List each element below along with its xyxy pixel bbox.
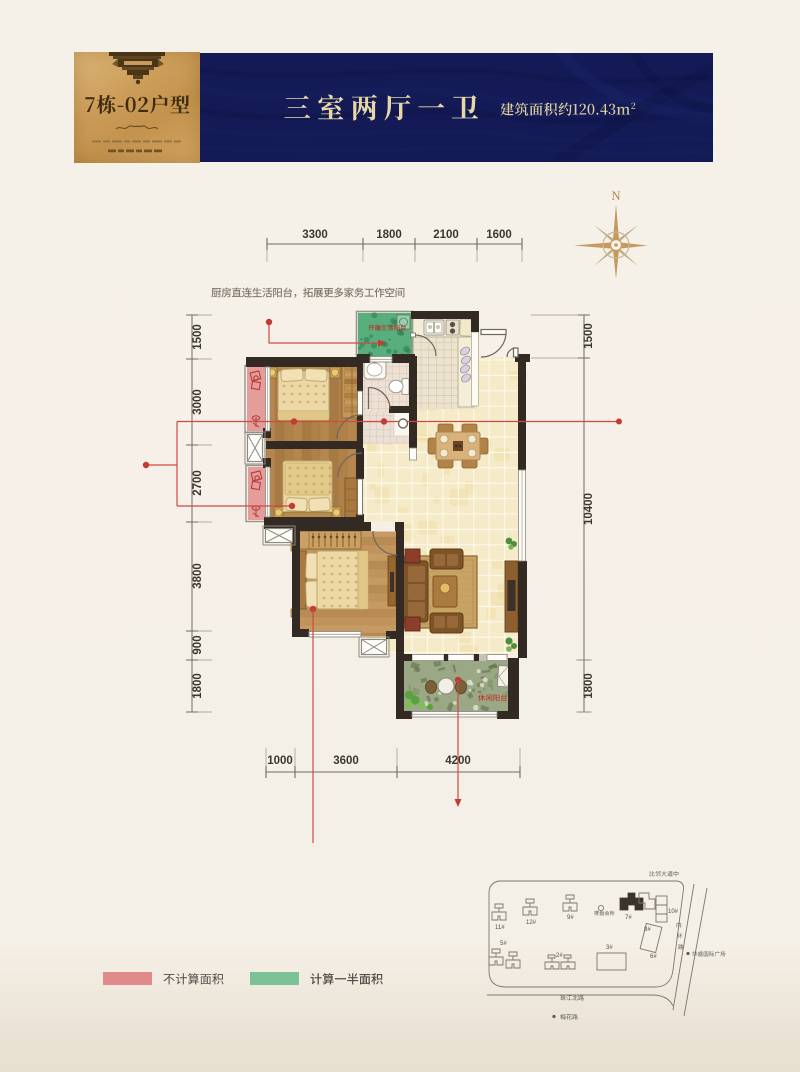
svg-text:3300: 3300: [302, 229, 328, 241]
svg-text:1000: 1000: [267, 755, 293, 767]
svg-text:10#: 10#: [668, 909, 679, 915]
svg-text:9#: 9#: [567, 915, 574, 921]
svg-text:900: 900: [192, 635, 204, 654]
svg-text:3000: 3000: [192, 389, 204, 415]
svg-text:7#: 7#: [625, 915, 632, 921]
svg-text:3#: 3#: [606, 945, 613, 951]
svg-text:2700: 2700: [192, 470, 204, 496]
svg-text:2#: 2#: [556, 953, 563, 959]
svg-text:3800: 3800: [192, 563, 204, 589]
svg-text:10400: 10400: [583, 493, 595, 525]
svg-text:12#: 12#: [526, 920, 537, 926]
svg-text:2100: 2100: [433, 229, 459, 241]
svg-text:3600: 3600: [333, 755, 359, 767]
svg-text:1800: 1800: [192, 673, 204, 699]
svg-text:1500: 1500: [583, 323, 595, 349]
svg-text:1600: 1600: [486, 229, 512, 241]
svg-text:8#: 8#: [644, 927, 651, 933]
svg-text:1800: 1800: [583, 673, 595, 699]
svg-text:11#: 11#: [495, 925, 505, 931]
svg-text:1500: 1500: [192, 324, 204, 350]
svg-text:6#: 6#: [650, 954, 657, 960]
svg-text:1800: 1800: [376, 229, 402, 241]
svg-text:5#: 5#: [500, 941, 507, 947]
svg-text:N: N: [611, 189, 620, 203]
